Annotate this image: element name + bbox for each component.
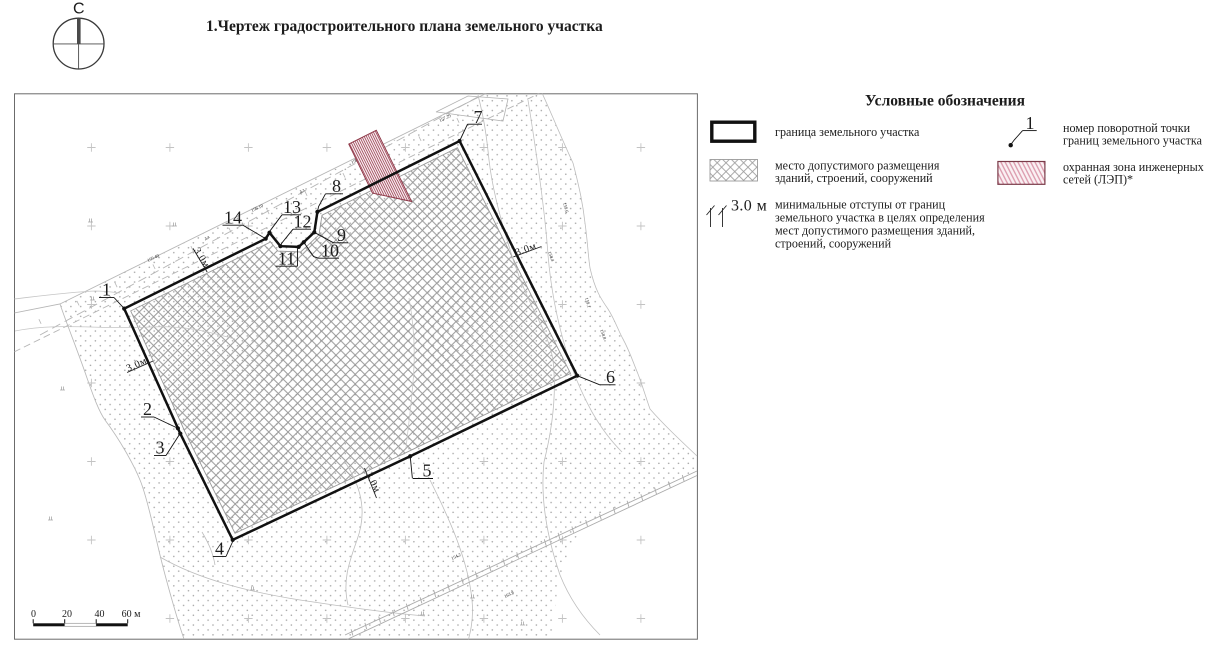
svg-text:1: 1 (102, 280, 111, 300)
svg-text:13: 13 (283, 197, 301, 217)
svg-text:0: 0 (31, 609, 36, 620)
svg-text:8: 8 (332, 176, 341, 196)
svg-text:3: 3 (156, 438, 165, 458)
svg-text:сетей (ЛЭП)*: сетей (ЛЭП)* (1063, 173, 1133, 187)
svg-text:40: 40 (95, 609, 105, 620)
svg-text:10: 10 (321, 241, 339, 261)
svg-text:3.0 м: 3.0 м (731, 198, 767, 215)
svg-text:С: С (73, 1, 85, 18)
svg-text:6: 6 (606, 367, 615, 387)
svg-text:строений, сооружений: строений, сооружений (775, 237, 892, 251)
svg-text:14: 14 (224, 208, 242, 228)
svg-text:1.Чертеж градостроительного пл: 1.Чертеж градостроительного плана земель… (206, 18, 603, 35)
svg-text:границ земельного участка: границ земельного участка (1063, 134, 1203, 148)
svg-text:4: 4 (215, 539, 224, 559)
svg-text:20: 20 (62, 609, 72, 620)
svg-text:Условные обозначения: Условные обозначения (865, 93, 1025, 110)
svg-text:минимальные отступы от границ: минимальные отступы от границ (775, 198, 946, 212)
svg-text:мест допустимого размещения зд: мест допустимого размещения зданий, (775, 224, 975, 238)
svg-text:земельного участка в целях опр: земельного участка в целях определения (775, 211, 985, 225)
svg-text:60 м: 60 м (122, 609, 142, 620)
svg-text:граница земельного участка: граница земельного участка (775, 125, 920, 139)
svg-text:зданий, строений, сооружений: зданий, строений, сооружений (775, 171, 933, 185)
svg-text:2: 2 (143, 399, 152, 419)
svg-text:5: 5 (423, 461, 432, 481)
svg-text:1: 1 (1026, 113, 1035, 133)
svg-text:11: 11 (278, 249, 295, 269)
